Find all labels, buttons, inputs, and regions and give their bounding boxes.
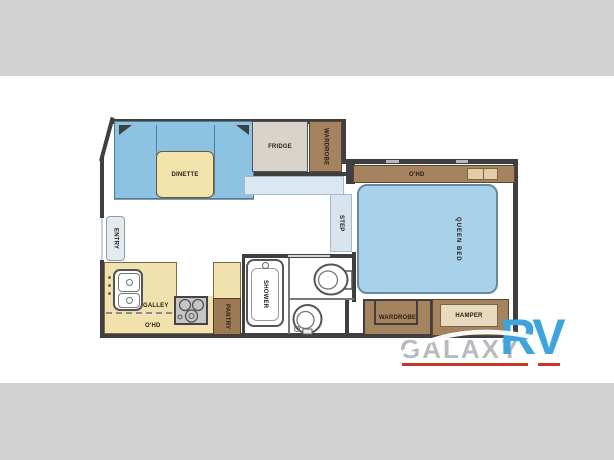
step-label: STEP	[338, 215, 344, 231]
pantry-label: PANTRY	[224, 304, 230, 329]
shower-label: SHOWER	[262, 280, 268, 308]
window-bedroom-1	[386, 160, 399, 163]
sink-bowl-bottom	[118, 293, 140, 308]
galley-ohd-label: O'HD	[145, 323, 161, 329]
top-letterbox-bar	[0, 0, 614, 76]
logo-swoosh-icon	[388, 316, 593, 368]
corner-brace-left-icon	[119, 125, 132, 135]
wall-left-upper	[100, 158, 104, 218]
corner-brace-right-icon	[236, 125, 249, 135]
galaxy-rv-logo: GALAXY RV	[388, 316, 593, 368]
galley-label: GALLEY	[143, 303, 169, 309]
queen-bed-label: QUEEN BED	[455, 217, 461, 262]
bath-door-opening	[288, 255, 330, 257]
screenshot-stage: DINETTE FRIDGE WARDROBE STEP ENTRY GALLE…	[0, 0, 614, 460]
hallway-landing	[244, 176, 344, 195]
wall-cabinet-left	[345, 300, 349, 334]
wall-top-bedroom	[346, 159, 518, 164]
wall-front-angled	[99, 117, 115, 162]
wardrobe-top: WARDROBE	[309, 121, 342, 172]
galley-sink	[113, 269, 143, 311]
step: STEP	[330, 194, 352, 252]
bath-sink-icon	[291, 303, 325, 336]
bath-divider-vertical	[288, 258, 290, 334]
bottom-letterbox-bar	[0, 383, 614, 460]
logo-underline	[402, 363, 528, 366]
queen-bed: QUEEN BED	[357, 184, 498, 294]
faucet-knob-icon	[108, 276, 111, 279]
bedroom-ohd-label: O'HD	[409, 172, 425, 178]
overhead-cabinet-doors	[467, 168, 498, 180]
slideout-dash-line	[106, 312, 172, 314]
bench-divider-right	[214, 125, 215, 195]
shower-stall: SHOWER	[246, 259, 284, 327]
stove-cooktop	[174, 296, 208, 325]
bath-divider-horizontal	[288, 298, 354, 300]
wall-wardrobe-right	[342, 119, 346, 164]
pantry: PANTRY	[213, 298, 241, 335]
fridge: FRIDGE	[252, 121, 308, 172]
dinette-table: DINETTE	[156, 151, 214, 198]
dinette-label: DINETTE	[171, 172, 198, 178]
toilet-icon	[312, 262, 354, 298]
fridge-label: FRIDGE	[268, 144, 292, 150]
entry-door: ENTRY	[106, 216, 125, 261]
bedroom-overhead-cabinet: O'HD	[353, 165, 515, 183]
sink-bowl-top	[118, 273, 140, 292]
wardrobe-bottom-label: WARDROBE	[379, 315, 416, 321]
wall-entry-opening	[101, 218, 103, 260]
entry-label: ENTRY	[113, 228, 119, 249]
wardrobe-top-label: WARDROBE	[323, 128, 329, 165]
pantry-counter	[213, 262, 241, 302]
burners-icon	[176, 298, 206, 323]
cabinet-door-divider	[483, 169, 484, 179]
drain-icon	[126, 297, 133, 304]
logo-underline-short	[538, 363, 560, 366]
window-bedroom-2	[456, 160, 468, 163]
faucet-knob-icon	[108, 284, 111, 287]
drain-icon	[126, 279, 133, 286]
wall-bath-left	[242, 254, 245, 334]
faucet-knob-icon	[108, 292, 111, 295]
